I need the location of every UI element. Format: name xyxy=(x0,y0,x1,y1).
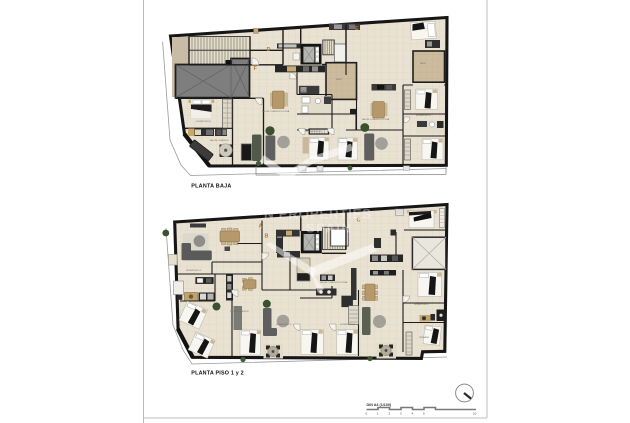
svg-text:DORMITORIO 2: DORMITORIO 2 xyxy=(276,324,292,326)
svg-text:PLANTA BAJA: PLANTA BAJA xyxy=(191,183,231,189)
svg-text:DIN A4 (1/100): DIN A4 (1/100) xyxy=(367,403,392,407)
svg-text:D: D xyxy=(267,47,271,53)
svg-text:PATIO: PATIO xyxy=(420,62,426,65)
svg-text:N PROPERTIES: N PROPERTIES xyxy=(264,207,372,222)
svg-text:PLANTA PISO 1 y 2: PLANTA PISO 1 y 2 xyxy=(191,371,244,377)
svg-text:SALON COMEDOR COCINA: SALON COMEDOR COCINA xyxy=(362,118,390,121)
svg-text:SALON COMEDOR COCINA: SALON COMEDOR COCINA xyxy=(262,110,290,113)
svg-text:DORMITORIO 1: DORMITORIO 1 xyxy=(340,324,356,326)
svg-text:B: B xyxy=(265,234,269,240)
svg-text:DORMITORIO 2: DORMITORIO 2 xyxy=(306,131,322,133)
svg-text:DORMITORIO 2: DORMITORIO 2 xyxy=(414,304,430,306)
svg-text:DORMITORIO 1: DORMITORIO 1 xyxy=(186,270,202,272)
svg-text:E: E xyxy=(355,26,359,32)
svg-text:A: A xyxy=(259,224,263,230)
svg-text:DORMITORIO 1: DORMITORIO 1 xyxy=(416,115,432,117)
svg-text:SALON COMEDOR: SALON COMEDOR xyxy=(230,310,249,313)
svg-text:DORMITORIO 1: DORMITORIO 1 xyxy=(196,121,212,123)
svg-text:TERRAZA: TERRAZA xyxy=(419,336,429,339)
svg-text:10: 10 xyxy=(473,412,477,416)
svg-text:SALON COMEDOR: SALON COMEDOR xyxy=(210,139,229,142)
svg-text:SALON COMEDOR COCINA: SALON COMEDOR COCINA xyxy=(320,281,348,284)
svg-text:PATIO: PATIO xyxy=(336,78,342,81)
svg-text:SPAIN: SPAIN xyxy=(306,221,352,236)
svg-text:BAÑO 1: BAÑO 1 xyxy=(300,90,308,93)
